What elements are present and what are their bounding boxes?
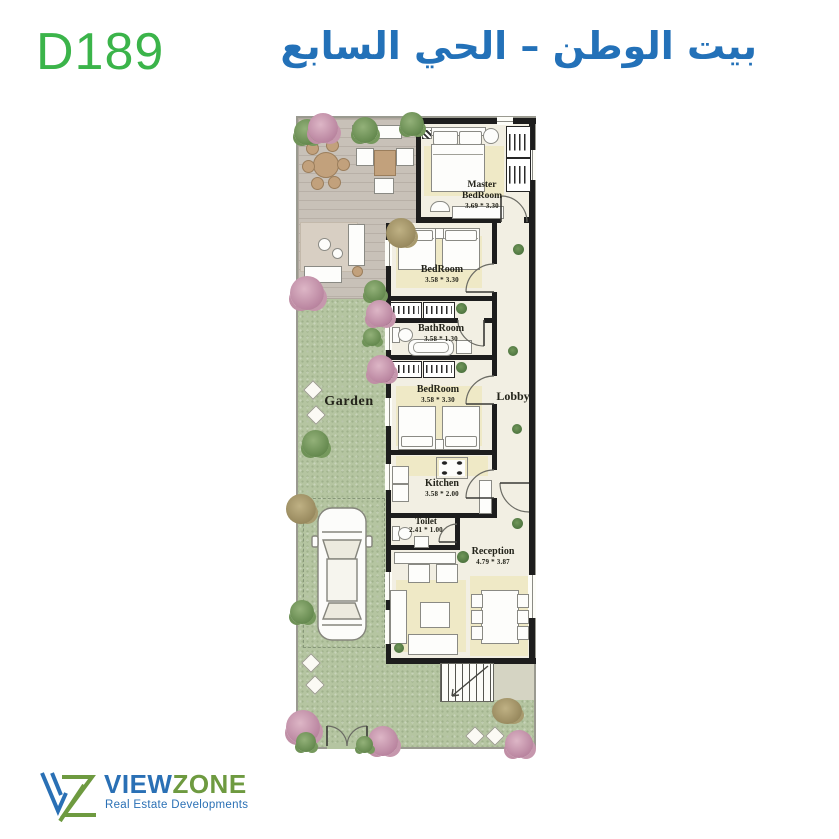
- master-stool: [430, 201, 450, 212]
- stove: [436, 457, 468, 479]
- parking-area: [303, 498, 385, 648]
- kitchen-cabinet: [392, 484, 409, 502]
- reception-l-sofa: [390, 590, 407, 644]
- fridge: [392, 466, 409, 484]
- deck-armchair-right: [396, 148, 414, 166]
- bush-pink: [308, 113, 338, 143]
- bush-pink: [505, 730, 533, 758]
- plant-sprig: [394, 643, 404, 653]
- wall-lobby-2: [492, 292, 497, 376]
- kitchen-counter-right: [479, 480, 492, 514]
- deck-pouf-2: [332, 248, 343, 259]
- dining-chair-l1: [471, 594, 483, 608]
- tv-console: [394, 552, 456, 564]
- tree-green: [356, 736, 373, 753]
- brand-wordmark: VIEWZONE: [104, 771, 247, 797]
- bedroom2-pillow-left: [401, 436, 433, 447]
- outdoor-chair-4: [337, 158, 350, 171]
- window-kitchen: [385, 464, 392, 490]
- reception-armchair-2: [436, 564, 458, 583]
- window-bathroom: [385, 326, 392, 350]
- bathtub-basin: [413, 342, 449, 353]
- bush-pink: [367, 355, 395, 383]
- logo-v-shape-inner: [52, 773, 61, 795]
- outdoor-chair-6: [328, 176, 341, 189]
- hall-closet-1b: [423, 302, 455, 319]
- wall-lobby-3: [492, 404, 497, 470]
- tree-olive: [386, 218, 416, 248]
- deck-sofa-right: [348, 224, 365, 266]
- dining-chair-r3: [517, 626, 529, 640]
- reception-loveseat: [408, 634, 458, 655]
- wall-master-bottom-b: [524, 217, 535, 223]
- master-side-table: [483, 128, 499, 144]
- tree-green: [296, 732, 316, 752]
- reception-label: Reception 4.79 * 3.87: [460, 546, 526, 566]
- bush-pink: [366, 300, 393, 327]
- wall-lobby-1: [492, 223, 497, 264]
- bedroom1-label: BedRoom 3.58 * 3.30: [408, 264, 476, 284]
- viewzone-logo-mark: [40, 769, 98, 825]
- dining-chair-r1: [517, 594, 529, 608]
- wall-top: [416, 118, 536, 124]
- tree-olive: [286, 494, 316, 524]
- lobby-label: Lobby: [492, 390, 534, 404]
- window-master-top: [497, 117, 513, 125]
- deck-lounge-chair: [374, 178, 394, 194]
- outdoor-chair-5: [311, 177, 324, 190]
- toilet-sink: [414, 536, 429, 548]
- dining-table: [481, 590, 519, 644]
- garden-label: Garden: [318, 394, 380, 410]
- dining-chair-l3: [471, 626, 483, 640]
- plant-sprig: [513, 244, 524, 255]
- kitchen-label: Kitchen 3.58 * 2.00: [410, 478, 474, 498]
- master-pillow-left: [433, 131, 458, 145]
- plant-sprig: [508, 346, 518, 356]
- floor-plan-sheet: D189 بيت الوطن – الحي السابع: [0, 0, 839, 839]
- tree-green: [352, 117, 378, 143]
- bedroom1-pillow-right: [445, 230, 477, 241]
- window-reception-right: [528, 575, 536, 618]
- tree-green: [290, 600, 314, 624]
- outdoor-chair-3: [302, 160, 315, 173]
- brand-view: VIEW: [104, 769, 172, 799]
- hall-closet-1a: [390, 302, 422, 319]
- reception-coffee-table: [420, 602, 450, 628]
- hall-closet-2b: [423, 361, 455, 378]
- wall-lobby-4: [492, 498, 497, 518]
- plant-sprig: [456, 362, 467, 373]
- tree-green: [364, 280, 386, 302]
- deck-pouf-1: [318, 238, 331, 251]
- reception-armchair-1: [408, 564, 430, 583]
- stairs: [440, 663, 494, 702]
- toilet-label: Toilet 2.41 * 1.00: [398, 516, 454, 534]
- tree-green: [363, 328, 381, 346]
- tree-olive: [492, 698, 522, 724]
- wall-bed1-bottom: [386, 296, 493, 301]
- unit-code: D189: [36, 22, 164, 82]
- tree-green: [400, 112, 424, 136]
- master-closet-1: [506, 126, 531, 158]
- window-bedroom2: [385, 398, 392, 426]
- brand-tagline: Real Estate Developments: [105, 799, 248, 811]
- deck-coffee-table: [374, 150, 396, 176]
- project-title-arabic: بيت الوطن – الحي السابع: [280, 24, 757, 68]
- bathroom-label: BathRoom 3.58 * 1.30: [410, 323, 472, 343]
- deck-armchair-left: [356, 148, 374, 166]
- tree-green: [302, 430, 329, 457]
- dining-chair-r2: [517, 610, 529, 624]
- deck-side-table: [352, 266, 363, 277]
- wall-lamp-icon: [422, 130, 431, 139]
- brand-zone: ZONE: [172, 769, 246, 799]
- plant-sprig: [512, 518, 523, 529]
- bedroom2-label: BedRoom 3.58 * 3.30: [404, 384, 472, 404]
- master-pillow-right: [459, 131, 482, 145]
- plant-sprig: [512, 424, 522, 434]
- dining-chair-l2: [471, 610, 483, 624]
- outdoor-dining-table: [313, 152, 339, 178]
- bedroom2-nightstand: [435, 439, 444, 450]
- plant-sprig: [456, 303, 467, 314]
- bedroom2-pillow-right: [445, 436, 477, 447]
- master-bedroom-label: Master BedRoom 3.69 * 3.30: [452, 180, 512, 210]
- bush-pink: [290, 276, 324, 310]
- bedroom1-nightstand: [435, 228, 444, 239]
- wall-bed2-bottom: [386, 450, 493, 455]
